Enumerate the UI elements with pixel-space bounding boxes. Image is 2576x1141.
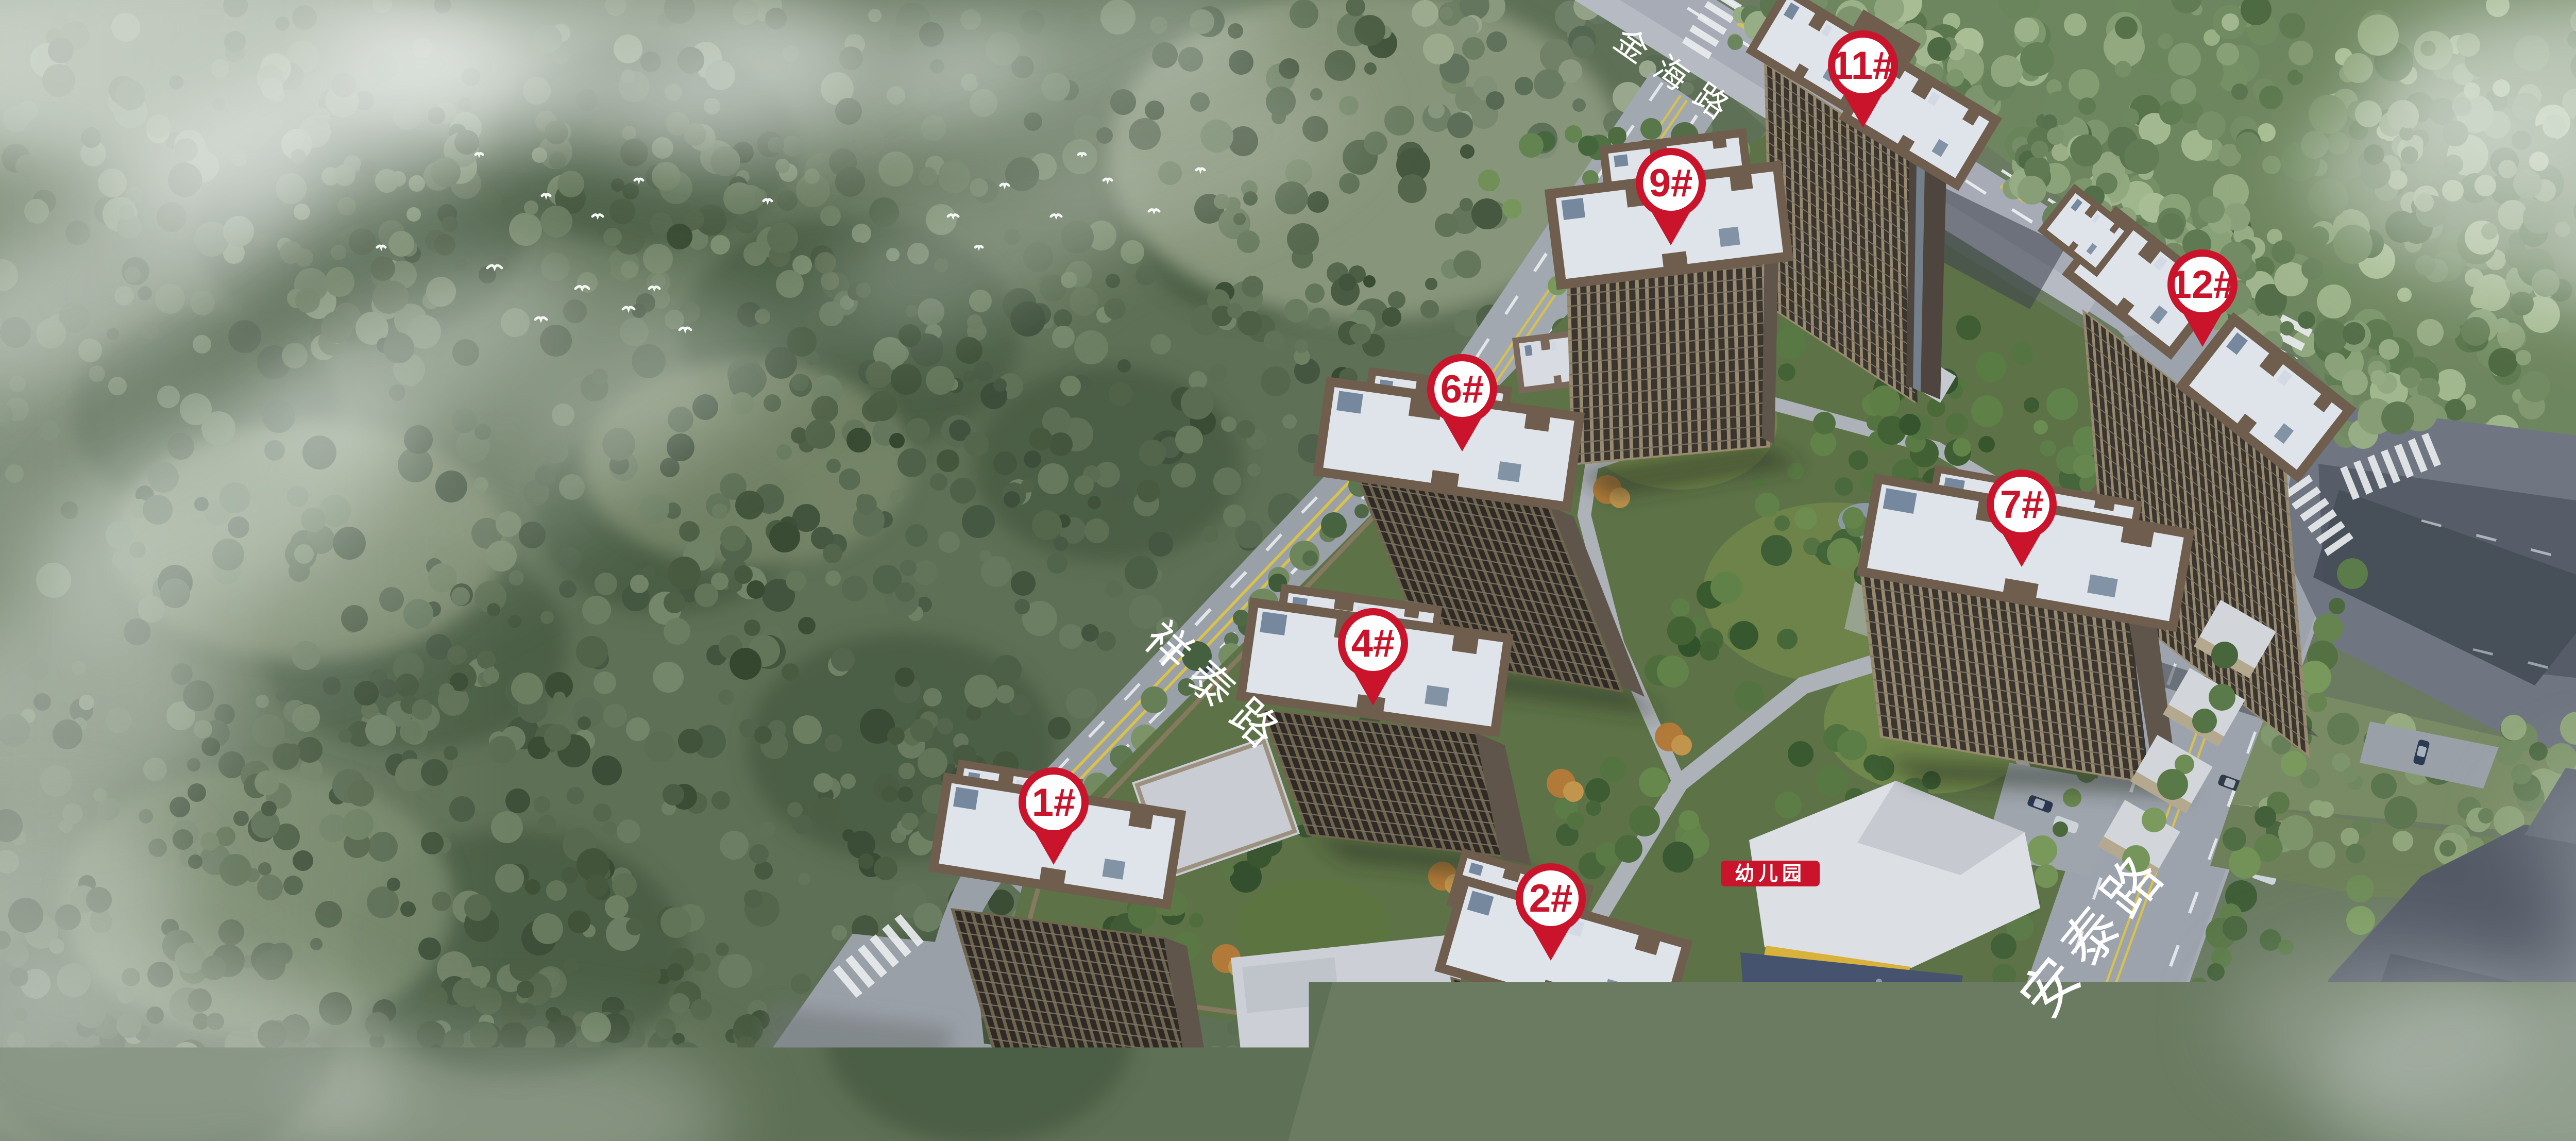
svg-text:9#: 9# [1649,161,1693,205]
svg-text:1#: 1# [1032,781,1076,825]
svg-text:11#: 11# [1832,44,1895,88]
svg-text:4#: 4# [1351,622,1395,665]
svg-text:7#: 7# [2000,483,2044,527]
svg-text:幼儿园: 幼儿园 [1735,863,1806,885]
svg-text:12#: 12# [2170,263,2235,307]
svg-text:2#: 2# [1529,877,1573,920]
svg-text:6#: 6# [1440,367,1484,411]
